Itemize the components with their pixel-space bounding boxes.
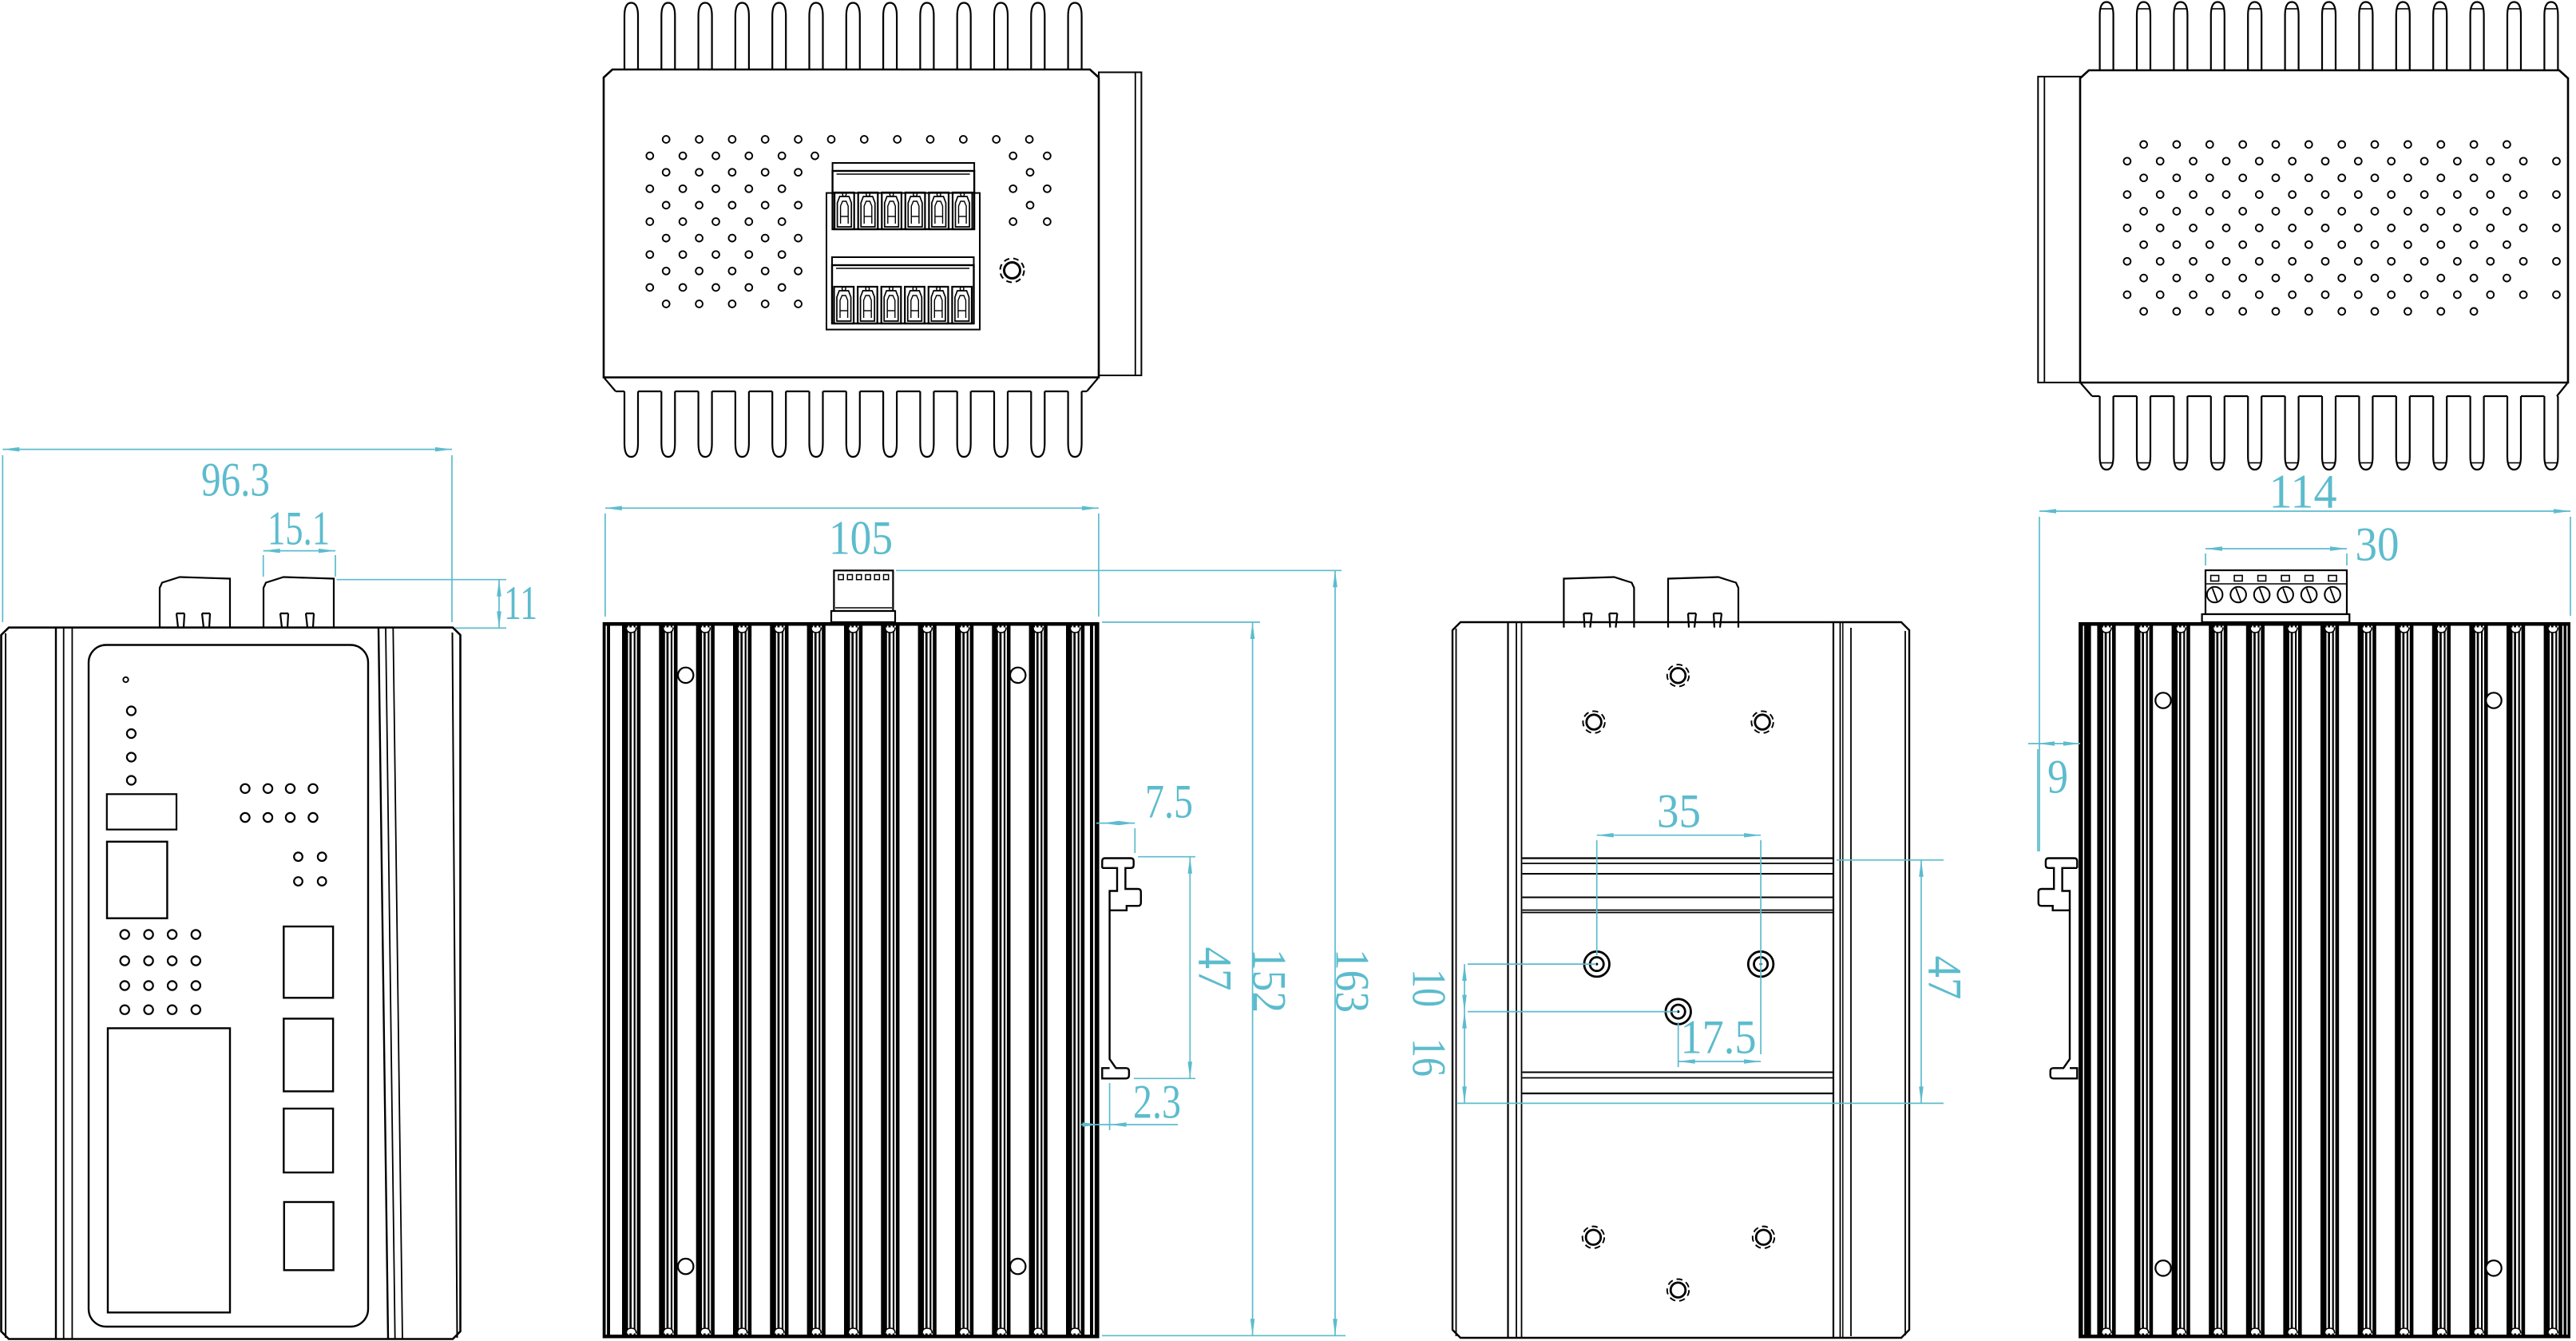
- svg-text:15.1: 15.1: [268, 502, 330, 554]
- svg-text:9: 9: [2047, 750, 2068, 803]
- svg-text:96.3: 96.3: [201, 453, 270, 506]
- svg-text:35: 35: [1657, 784, 1701, 837]
- svg-text:105: 105: [829, 511, 893, 564]
- svg-text:11: 11: [504, 577, 537, 629]
- svg-text:163: 163: [1326, 949, 1379, 1013]
- svg-text:2.3: 2.3: [1133, 1075, 1181, 1128]
- svg-text:47: 47: [1919, 956, 1972, 1000]
- svg-text:114: 114: [2269, 465, 2337, 518]
- svg-text:152: 152: [1243, 949, 1296, 1013]
- svg-text:47: 47: [1189, 947, 1242, 991]
- svg-text:30: 30: [2356, 518, 2400, 570]
- svg-text:7.5: 7.5: [1145, 775, 1193, 827]
- svg-text:10: 10: [1403, 969, 1456, 1007]
- svg-text:16: 16: [1403, 1038, 1456, 1077]
- svg-text:17.5: 17.5: [1681, 1010, 1757, 1063]
